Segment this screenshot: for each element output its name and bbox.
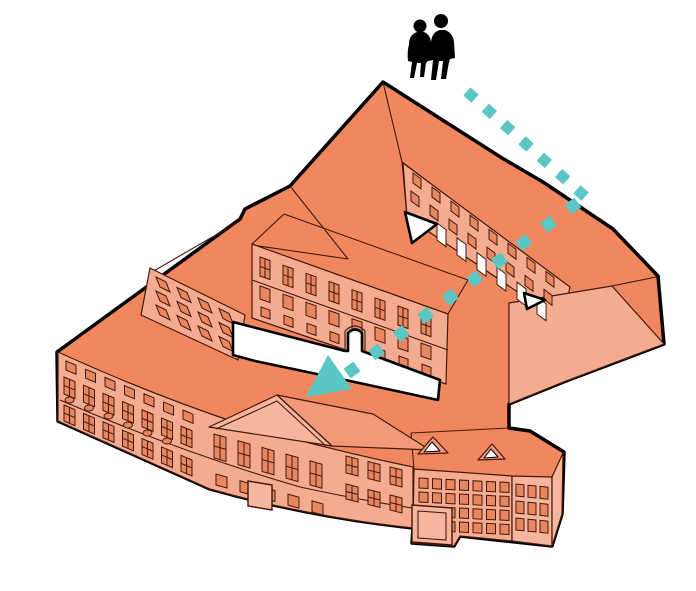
- entrance-door-southeast: [412, 505, 452, 545]
- route-dash: [555, 169, 571, 185]
- route-dash: [537, 153, 553, 169]
- route-dash: [500, 120, 516, 136]
- entrance-door-pediment: [248, 481, 272, 510]
- route-dash: [518, 136, 534, 152]
- person-right: [429, 14, 455, 80]
- route-dash: [573, 185, 589, 201]
- windows-southeast-corner: [516, 484, 548, 533]
- route-dash: [463, 87, 479, 103]
- scene-illustration: [0, 0, 696, 591]
- people-icon: [408, 14, 455, 80]
- illustration-canvas: [0, 0, 696, 591]
- route-dash: [482, 104, 498, 120]
- person-left: [408, 20, 433, 79]
